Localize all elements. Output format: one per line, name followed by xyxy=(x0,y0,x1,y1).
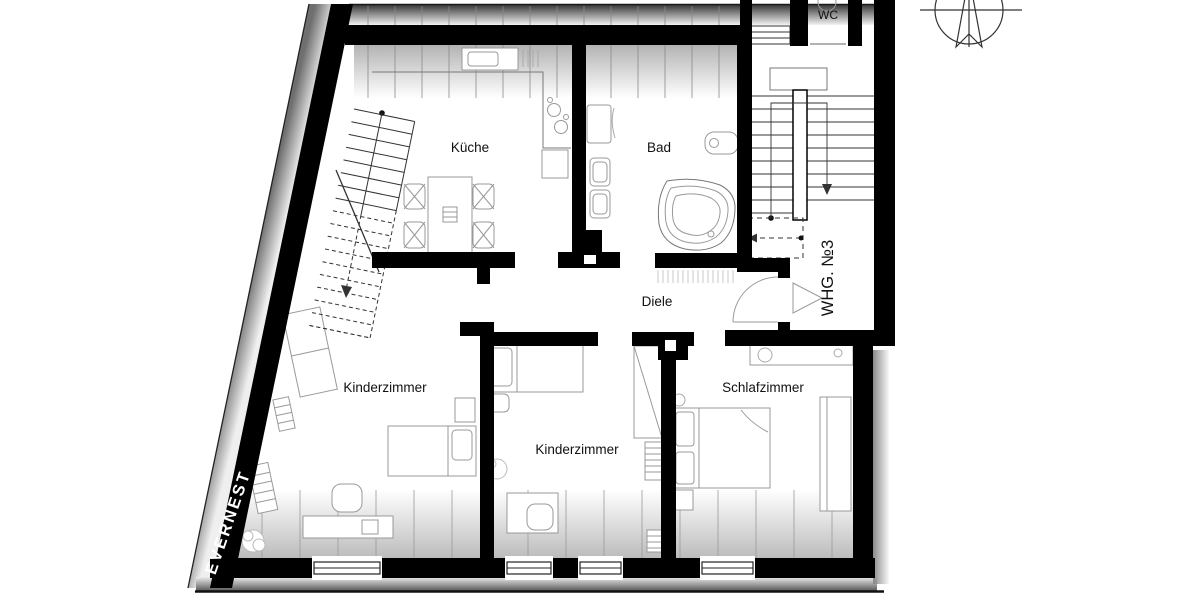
walkline-arrow xyxy=(822,184,832,195)
chimney-flue xyxy=(584,255,596,264)
shower xyxy=(587,105,611,143)
label-bedroom: Schlafzimmer xyxy=(722,380,804,395)
stairwell xyxy=(748,68,874,258)
label-bath: Bad xyxy=(647,140,671,155)
walkline-arrow xyxy=(341,285,352,298)
wall-bath-hall xyxy=(655,253,737,268)
label-hall: Diele xyxy=(642,294,673,309)
door-leaf-symbol xyxy=(793,283,822,313)
label-child-room-center: Kinderzimmer xyxy=(535,442,619,457)
wall-wc-right xyxy=(848,0,862,46)
stair-stringer xyxy=(793,90,807,220)
wardrobe xyxy=(283,307,338,397)
wall-top xyxy=(345,25,752,45)
kitchen-sink xyxy=(462,48,518,70)
bedroom-furniture xyxy=(673,345,853,511)
pillow xyxy=(676,452,694,484)
wall-kitchen-hall xyxy=(372,252,515,268)
kitchen-chair xyxy=(473,184,494,209)
label-apartment-number: WHG. №3 xyxy=(819,240,837,316)
kitchen-table xyxy=(428,177,472,253)
pillow xyxy=(452,430,472,460)
wall-children-divider xyxy=(480,336,494,560)
bedside-table xyxy=(455,398,475,422)
hall-shelf xyxy=(746,26,790,44)
label-child-room-left: Kinderzimmer xyxy=(343,380,427,395)
kitchen-chair xyxy=(404,222,425,248)
window xyxy=(700,556,755,580)
hall-grate xyxy=(658,270,733,283)
dresser xyxy=(273,397,295,432)
stair-landing xyxy=(770,68,827,90)
wall-bedroom-divider xyxy=(661,346,676,560)
window xyxy=(312,556,382,580)
compass-rose-icon xyxy=(920,0,1022,47)
floor-plan-page: Küche Bad Diele Kinderzimmer Kinderzimme… xyxy=(0,0,1200,600)
dishwasher xyxy=(542,150,568,178)
desk-chair xyxy=(527,504,553,530)
window xyxy=(578,556,623,580)
bathroom-fixtures xyxy=(587,105,738,250)
window xyxy=(505,556,553,580)
wall-right-upper xyxy=(874,0,895,346)
entrance-door xyxy=(733,277,822,322)
wall-hall-child xyxy=(480,332,598,346)
shelf xyxy=(645,442,662,480)
wall-right-lower xyxy=(853,340,873,578)
maisonette-stair xyxy=(309,109,414,338)
stove-burner xyxy=(548,104,561,117)
floor-plan-drawing: Küche Bad Diele Kinderzimmer Kinderzimme… xyxy=(0,0,1200,600)
wall-stairwell-left xyxy=(737,45,752,258)
wardrobe xyxy=(820,397,851,511)
label-wc: WC xyxy=(818,8,838,22)
shelf xyxy=(647,530,662,552)
kitchen-chair xyxy=(404,184,425,209)
kitchen-chair xyxy=(473,222,494,248)
label-kitchen: Küche xyxy=(451,140,489,155)
wall-hall-bedroom xyxy=(725,330,874,346)
desk-chair xyxy=(332,484,362,512)
desk xyxy=(303,516,393,538)
desk-item xyxy=(362,520,378,534)
wall-wc-left xyxy=(790,0,808,46)
chimney-flue xyxy=(665,340,676,351)
wall-kitchen-bath xyxy=(572,43,586,232)
plant-sketch xyxy=(612,108,615,138)
pillow xyxy=(676,412,694,446)
stove-burner xyxy=(555,121,568,134)
